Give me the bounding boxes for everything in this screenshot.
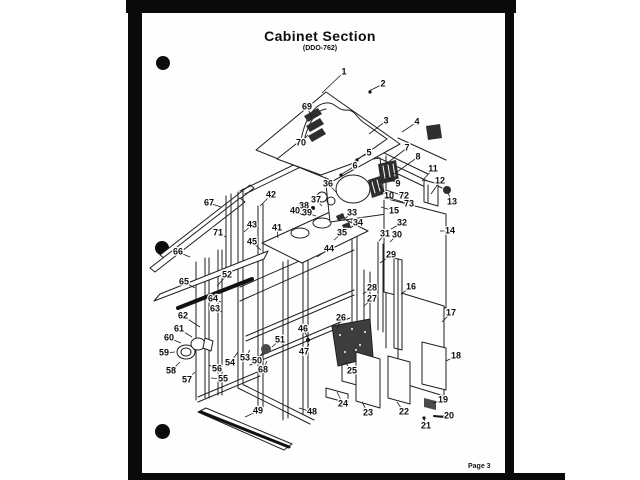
part-number-32: 32 [397,217,407,227]
part-number-63: 63 [210,303,220,313]
panel-18 [422,342,446,390]
part-number-41: 41 [272,222,282,232]
part-number-62: 62 [178,310,188,320]
part-number-65: 65 [179,276,189,286]
bottom-rail-dark-edge [201,412,289,447]
part-number-35: 35 [337,227,347,237]
part-number-34: 34 [353,217,363,227]
part-number-5: 5 [366,147,371,157]
bracket-19 [424,398,436,410]
part-number-49: 49 [253,405,263,415]
part-number-39: 39 [302,207,312,217]
part-number-22: 22 [399,406,409,416]
part-number-45: 45 [247,236,257,246]
panel-22 [388,356,410,404]
part-number-70: 70 [296,137,306,147]
part-number-71: 71 [213,227,223,237]
part-number-55: 55 [218,373,228,383]
part-number-13: 13 [447,196,457,206]
part-number-56: 56 [212,363,222,373]
part-number-37: 37 [311,194,321,204]
clip-part-61 [203,338,213,351]
part-number-20: 20 [444,410,454,420]
part-number-2: 2 [380,78,385,88]
part-number-60: 60 [164,332,174,342]
bracket-part-4 [426,124,442,140]
part-number-40: 40 [290,205,300,215]
panel-23 [356,352,380,408]
part-number-33: 33 [347,207,357,217]
part-number-23: 23 [363,407,373,417]
part-number-48: 48 [307,406,317,416]
part-number-53: 53 [240,352,250,362]
part-number-42: 42 [266,189,276,199]
part-number-8: 8 [415,151,420,161]
part-number-47: 47 [299,346,309,356]
part-number-43: 43 [247,219,257,229]
part-number-30: 30 [392,229,402,239]
part-number-31: 31 [380,228,390,238]
part-number-15: 15 [389,205,399,215]
part-number-24: 24 [338,398,348,408]
part-number-3: 3 [383,115,388,125]
part-number-52: 52 [222,269,232,279]
part-number-18: 18 [451,350,461,360]
part-number-36: 36 [323,178,333,188]
scanned-manual-page: Cabinet Section (DDO-762) Page 3 [0,0,640,480]
part-number-21: 21 [421,420,431,430]
knob-part-13 [443,186,451,194]
part-number-61: 61 [174,323,184,333]
part-number-1: 1 [341,66,346,76]
part-number-67: 67 [204,197,214,207]
part-number-6: 6 [352,160,357,170]
part-number-57: 57 [182,374,192,384]
part-number-9: 9 [395,178,400,188]
exploded-parts-diagram: 1234567891011121314151617181920212223242… [0,0,640,480]
part-number-54: 54 [225,357,235,367]
part-number-51: 51 [275,334,285,344]
part-number-66: 66 [173,246,183,256]
part-number-26: 26 [336,312,346,322]
part-number-11: 11 [428,163,438,173]
part-number-14: 14 [445,225,455,235]
part-number-27: 27 [367,293,377,303]
part-number-28: 28 [367,282,377,292]
part-number-19: 19 [438,394,448,404]
part-number-25: 25 [347,365,357,375]
part-number-46: 46 [298,323,308,333]
part-number-29: 29 [386,249,396,259]
screw-part-46 [306,338,310,342]
part-number-17: 17 [446,307,456,317]
part-number-69: 69 [302,101,312,111]
part-number-44: 44 [324,243,334,253]
part-number-7: 7 [404,142,409,152]
part-number-4: 4 [414,116,419,126]
part-number-59: 59 [159,347,169,357]
part-number-64: 64 [208,293,218,303]
part-number-58: 58 [166,365,176,375]
part-number-73: 73 [404,198,414,208]
part-number-12: 12 [435,175,445,185]
part-number-68: 68 [258,364,268,374]
part-number-16: 16 [406,281,416,291]
